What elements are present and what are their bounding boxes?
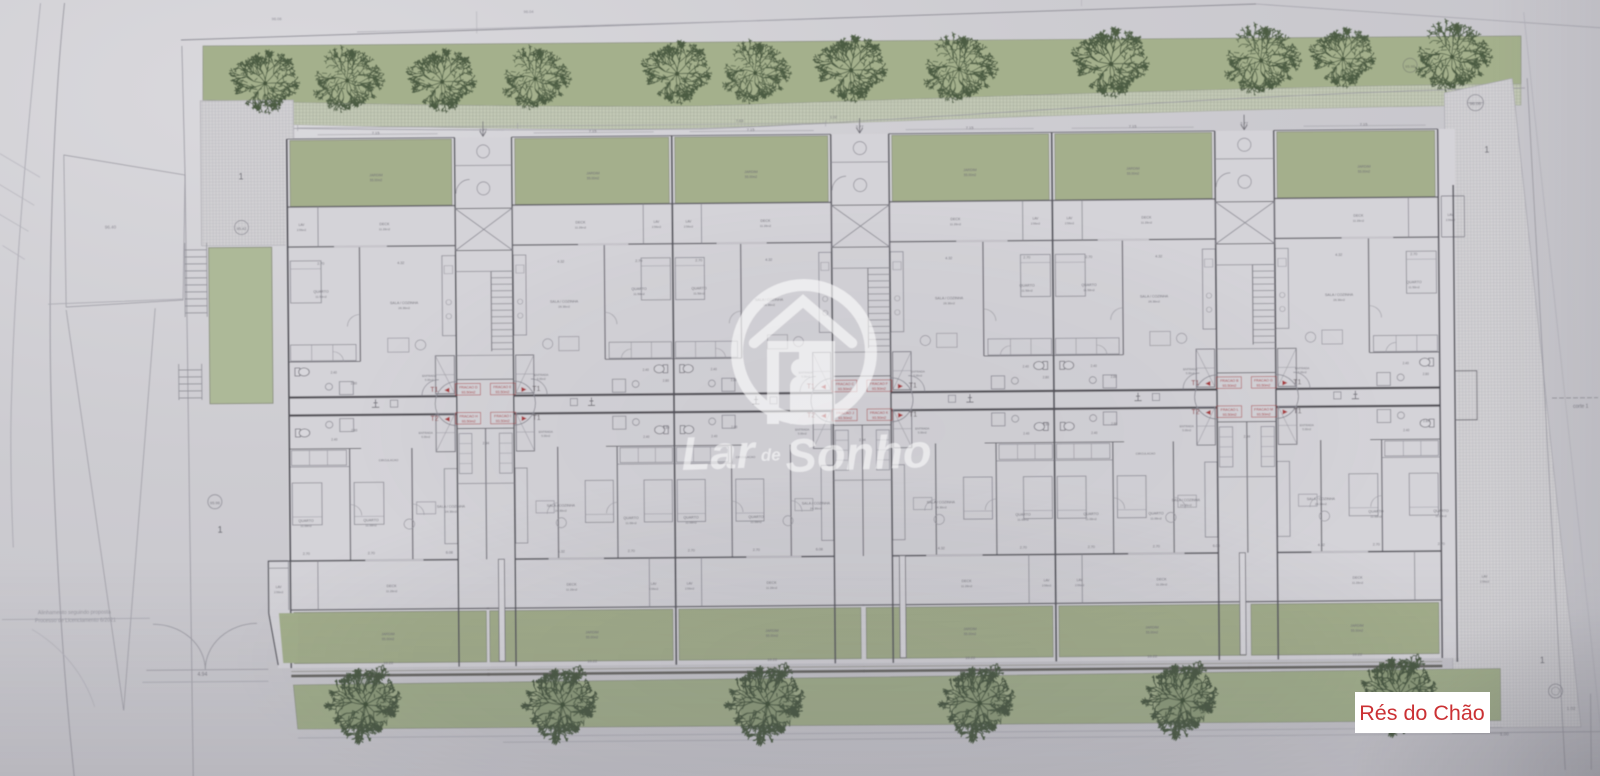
svg-text:Rés do Chão: Rés do Chão [1359, 701, 1485, 725]
svg-text:4.32: 4.32 [1335, 253, 1342, 257]
svg-text:2.77: 2.77 [856, 124, 865, 129]
svg-text:LAV: LAV [1447, 213, 1454, 217]
svg-text:2.80: 2.80 [1423, 419, 1429, 423]
svg-text:QUARTO: QUARTO [313, 290, 328, 294]
svg-text:7.15: 7.15 [1129, 124, 1138, 129]
svg-text:QUARTO: QUARTO [298, 519, 313, 523]
svg-text:2.56m2: 2.56m2 [1446, 218, 1456, 222]
svg-text:11.00m2: 11.00m2 [300, 524, 312, 528]
svg-text:96.04: 96.04 [524, 9, 535, 14]
svg-text:26.30m2: 26.30m2 [1333, 298, 1345, 302]
svg-text:1.02: 1.02 [830, 115, 837, 119]
svg-text:2.70: 2.70 [1410, 252, 1417, 256]
svg-text:96.06: 96.06 [272, 16, 283, 21]
svg-text:JARDIM: JARDIM [1126, 167, 1139, 171]
svg-text:2.77: 2.77 [1240, 121, 1249, 126]
svg-text:7.15: 7.15 [372, 130, 381, 135]
svg-text:2.40: 2.40 [1403, 361, 1409, 365]
svg-text:JARDIM: JARDIM [586, 171, 599, 175]
svg-text:DECK: DECK [379, 222, 390, 226]
svg-text:JARDIM: JARDIM [369, 173, 382, 177]
svg-text:2.40: 2.40 [1403, 428, 1409, 432]
svg-text:11.50m2: 11.50m2 [315, 295, 327, 299]
svg-text:Sonho: Sonho [784, 424, 932, 482]
svg-text:LAV: LAV [299, 223, 306, 227]
svg-text:2.40: 2.40 [331, 371, 337, 375]
svg-text:2.80: 2.80 [1423, 372, 1429, 376]
svg-text:95.42: 95.42 [236, 226, 247, 231]
svg-text:QUARTO: QUARTO [363, 518, 378, 522]
svg-text:QUARTO: QUARTO [1406, 280, 1421, 284]
svg-text:2.70: 2.70 [303, 552, 310, 556]
svg-text:11.00m2: 11.00m2 [365, 523, 377, 527]
svg-text:2.56m2: 2.56m2 [297, 228, 307, 232]
svg-text:95.96: 95.96 [210, 500, 221, 505]
svg-text:55.00m2: 55.00m2 [1127, 172, 1140, 176]
svg-text:55.00m2: 55.00m2 [745, 175, 758, 179]
svg-text:11.20m2: 11.20m2 [1141, 221, 1153, 225]
svg-text:95.96: 95.96 [1405, 64, 1416, 69]
svg-text:Lar: Lar [680, 424, 758, 480]
svg-text:DECK: DECK [1353, 214, 1364, 218]
svg-text:1: 1 [238, 171, 243, 181]
svg-text:2.40: 2.40 [331, 438, 337, 442]
svg-text:SALA / COZINHA: SALA / COZINHA [390, 301, 419, 305]
svg-text:DECK: DECK [575, 220, 586, 224]
svg-text:11.20m2: 11.20m2 [1353, 219, 1365, 223]
svg-text:DECK: DECK [1141, 216, 1152, 220]
svg-text:JARDIM: JARDIM [744, 170, 757, 174]
svg-text:26.30m2: 26.30m2 [398, 306, 410, 310]
svg-text:1: 1 [1484, 145, 1489, 155]
svg-text:SALA / COZINHA: SALA / COZINHA [1325, 293, 1354, 297]
svg-text:JARDIM: JARDIM [1357, 165, 1370, 169]
svg-text:de: de [760, 445, 780, 465]
svg-text:96.06: 96.06 [1470, 101, 1482, 106]
svg-text:55.00m2: 55.00m2 [587, 176, 600, 180]
svg-text:11.20m2: 11.20m2 [575, 225, 587, 229]
svg-text:2.77: 2.77 [479, 127, 488, 132]
svg-text:7.15: 7.15 [589, 128, 598, 133]
svg-text:55.00m2: 55.00m2 [370, 178, 383, 182]
svg-text:7.15: 7.15 [1360, 122, 1369, 127]
svg-text:JARDIM: JARDIM [963, 168, 976, 172]
svg-text:55.00m2: 55.00m2 [1358, 170, 1371, 174]
svg-text:7.63: 7.63 [736, 118, 745, 123]
svg-text:55.00m2: 55.00m2 [964, 173, 977, 177]
svg-text:2.70: 2.70 [317, 262, 324, 266]
svg-text:11.50m2: 11.50m2 [1408, 285, 1420, 289]
svg-text:2.80: 2.80 [351, 381, 357, 385]
svg-text:1: 1 [218, 525, 223, 535]
svg-text:96.40: 96.40 [105, 225, 117, 230]
svg-text:7.15: 7.15 [747, 127, 756, 132]
svg-text:4.32: 4.32 [397, 261, 404, 265]
svg-text:11.20m2: 11.20m2 [379, 227, 391, 231]
svg-text:7.15: 7.15 [966, 125, 975, 130]
